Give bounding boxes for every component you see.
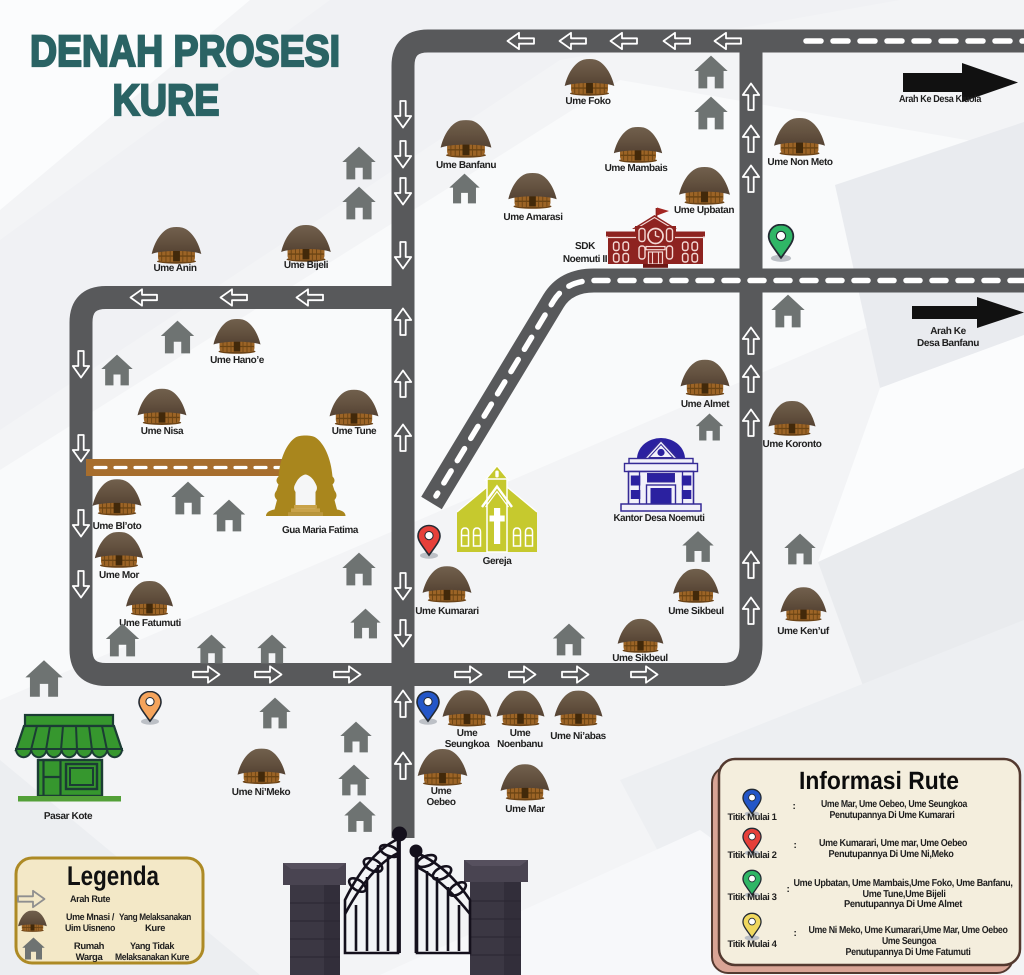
svg-text:Ume Bl’oto: Ume Bl’oto [93,521,142,532]
svg-text:KURE: KURE [113,76,220,125]
svg-text:Ume Ni Meko, Ume Kumarari,Ume: Ume Ni Meko, Ume Kumarari,Ume Mar, Ume O… [809,925,1008,936]
svg-text:Ume Nisa: Ume Nisa [141,426,184,437]
svg-text:Ume Sikbeul: Ume Sikbeul [612,653,668,664]
svg-text:Penutupannya Di Ume Fatumuti: Penutupannya Di Ume Fatumuti [846,947,972,958]
svg-text:Ume Tune: Ume Tune [332,426,377,437]
svg-text:Ume: Ume [457,728,478,739]
svg-text:Ume Hano’e: Ume Hano’e [210,355,265,366]
svg-text:Desa Banfanu: Desa Banfanu [917,338,979,349]
svg-text:Arah Rute: Arah Rute [70,894,110,905]
svg-text:Ume Mambais: Ume Mambais [605,163,669,174]
svg-text:Warga: Warga [76,952,104,963]
svg-text:Kure: Kure [145,923,165,934]
svg-text:Legenda: Legenda [67,861,160,891]
svg-text:Gereja: Gereja [483,556,513,567]
svg-text:Titik Mulai 1: Titik Mulai 1 [728,812,778,823]
svg-text:Gua Maria Fatima: Gua Maria Fatima [282,525,359,536]
svg-text:Arah Ke: Arah Ke [930,326,966,337]
svg-text:Yang Melaksanakan: Yang Melaksanakan [119,912,192,923]
svg-text:Ume Anin: Ume Anin [153,263,196,274]
svg-text::: : [787,884,790,895]
svg-text:Ume Ken’uf: Ume Ken’uf [777,626,830,637]
svg-text:Ume Foko: Ume Foko [565,96,610,107]
svg-text::: : [794,840,797,851]
svg-text:Ume Non Meto: Ume Non Meto [767,157,832,168]
svg-text:Ume Mnasi /: Ume Mnasi / [66,912,115,923]
svg-text:Ume Amarasi: Ume Amarasi [503,212,563,223]
svg-text:Ume Mar, Ume Oebeo, Ume Seungk: Ume Mar, Ume Oebeo, Ume Seungkoa [821,799,968,810]
svg-text:Penutupannya Di Ume Kumarari: Penutupannya Di Ume Kumarari [830,810,956,821]
svg-text:Ume: Ume [431,786,452,797]
svg-text:Kantor Desa Noemuti: Kantor Desa Noemuti [614,513,706,524]
svg-text:Uim Uisneno: Uim Uisneno [65,923,116,934]
svg-text::: : [794,928,797,939]
svg-text:Ume Bijeli: Ume Bijeli [284,260,329,271]
svg-text:Yang Tidak: Yang Tidak [130,941,175,952]
svg-text:Rumah: Rumah [74,941,105,952]
svg-text:Ume Ni’Meko: Ume Ni’Meko [232,787,291,798]
svg-text:SDK: SDK [575,241,596,252]
svg-text:Seungkoa: Seungkoa [445,739,490,750]
svg-text:Ume Seungoa: Ume Seungoa [882,936,937,947]
svg-text:Ume Mar: Ume Mar [505,804,545,815]
svg-text:Ume Banfanu: Ume Banfanu [436,160,496,171]
svg-text:Ume Koronto: Ume Koronto [763,439,822,450]
svg-text:Ume Fatumuti: Ume Fatumuti [119,618,181,629]
svg-text:Informasi Rute: Informasi Rute [799,767,959,795]
svg-text:Noemuti II: Noemuti II [563,254,608,265]
svg-text:Titik Mulai 2: Titik Mulai 2 [728,850,777,861]
svg-text:Ume Upbatan, Ume Mambais,Ume F: Ume Upbatan, Ume Mambais,Ume Foko, Ume B… [794,878,1014,889]
svg-text:Titik Mulai 3: Titik Mulai 3 [728,892,777,903]
svg-text:DENAH PROSESI: DENAH PROSESI [30,27,340,76]
svg-text:Ume Upbatan: Ume Upbatan [674,205,734,216]
svg-text:Ume Kumarari: Ume Kumarari [415,606,479,617]
svg-text:Noenbanu: Noenbanu [497,739,543,750]
svg-text:Ume Sikbeul: Ume Sikbeul [668,606,724,617]
svg-text:Penutupannya Di Ume Ni,Meko: Penutupannya Di Ume Ni,Meko [829,849,954,860]
svg-text:Ume Ni’abas: Ume Ni’abas [550,731,606,742]
svg-text:Melaksanakan Kure: Melaksanakan Kure [115,952,189,963]
svg-text::: : [793,801,796,812]
svg-text:Arah Ke Desa Kiuola: Arah Ke Desa Kiuola [899,94,982,105]
svg-text:Pasar Kote: Pasar Kote [44,811,93,822]
svg-text:Ume Mor: Ume Mor [99,570,139,581]
svg-text:Titik Mulai 4: Titik Mulai 4 [728,939,778,950]
svg-text:Oebeo: Oebeo [426,797,455,808]
svg-text:Ume Almet: Ume Almet [681,399,730,410]
svg-text:Ume Kumarari, Ume mar, Ume Oeb: Ume Kumarari, Ume mar, Ume Oebeo [819,838,967,849]
svg-text:Penutupannya Di Ume Almet: Penutupannya Di Ume Almet [844,899,963,910]
svg-text:Ume: Ume [510,728,531,739]
